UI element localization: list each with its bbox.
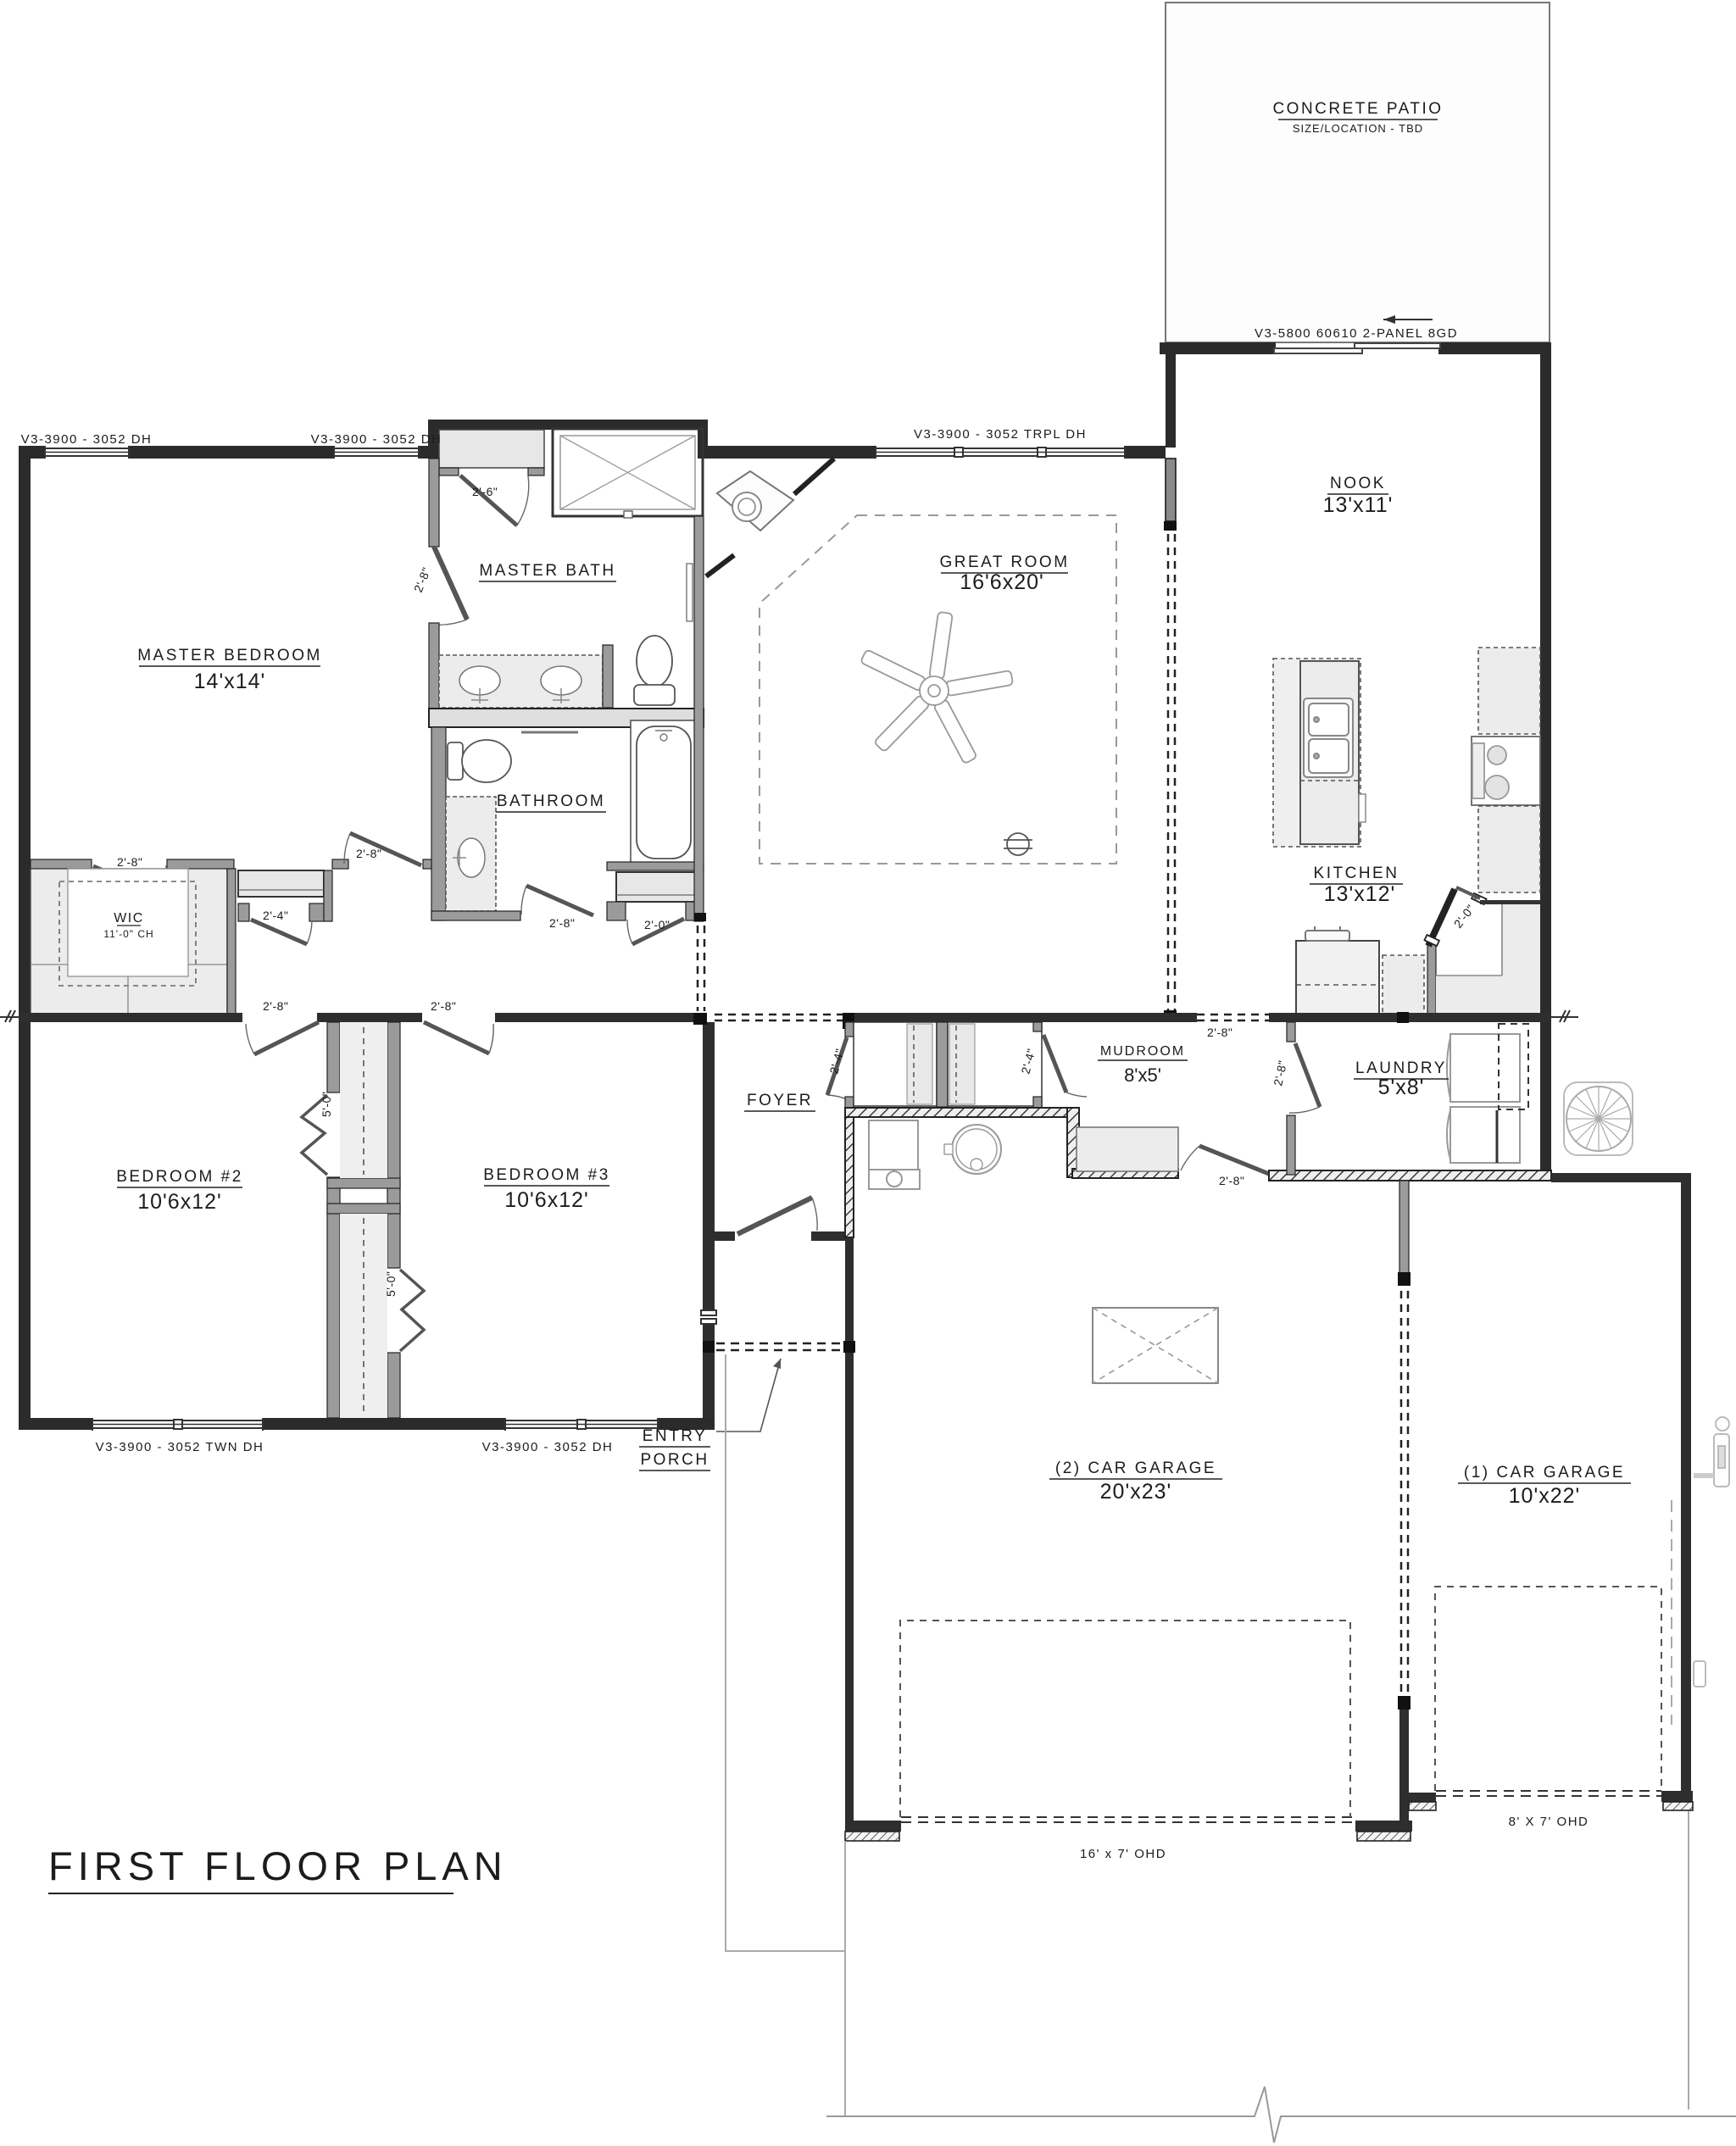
svg-text:8'x5': 8'x5' <box>1124 1065 1161 1086</box>
svg-text:CONCRETE PATIO: CONCRETE PATIO <box>1272 100 1443 118</box>
svg-text:5'-0": 5'-0" <box>384 1271 398 1297</box>
svg-text:2'-8": 2'-8" <box>356 847 381 860</box>
svg-text:14'x14': 14'x14' <box>194 670 266 693</box>
svg-text:5'-0": 5'-0" <box>320 1092 333 1117</box>
svg-text:8' X 7' OHD: 8' X 7' OHD <box>1509 1815 1589 1829</box>
svg-text:2'-6": 2'-6" <box>472 485 498 498</box>
svg-text:10'x22': 10'x22' <box>1509 1484 1581 1508</box>
svg-text:2'-8": 2'-8" <box>1207 1026 1232 1039</box>
svg-text:MUDROOM: MUDROOM <box>1100 1044 1185 1059</box>
svg-text:2'-8": 2'-8" <box>431 999 456 1013</box>
svg-text:16'6x20': 16'6x20' <box>960 570 1044 594</box>
svg-text:13'x11': 13'x11' <box>1323 493 1394 517</box>
svg-text:16' x 7' OHD: 16' x 7' OHD <box>1080 1847 1166 1861</box>
svg-text:2'-0": 2'-0" <box>644 918 670 931</box>
svg-text:BATHROOM: BATHROOM <box>497 792 605 810</box>
svg-text:10'6x12': 10'6x12' <box>137 1190 222 1214</box>
svg-text:20'x23': 20'x23' <box>1100 1480 1172 1504</box>
svg-text:FOYER: FOYER <box>747 1092 813 1109</box>
svg-text:LAUNDRY: LAUNDRY <box>1355 1059 1447 1077</box>
svg-text:MASTER BEDROOM: MASTER BEDROOM <box>137 647 322 664</box>
svg-text:FIRST FLOOR PLAN: FIRST FLOOR PLAN <box>48 1843 508 1888</box>
svg-text:(1) CAR GARAGE: (1) CAR GARAGE <box>1464 1464 1625 1482</box>
svg-text:11'-0" CH: 11'-0" CH <box>103 928 153 940</box>
svg-text:BEDROOM #2: BEDROOM #2 <box>116 1168 243 1186</box>
svg-text:V3-3900 - 3052 DH: V3-3900 - 3052 DH <box>21 432 153 447</box>
svg-text:ENTRY: ENTRY <box>643 1427 708 1445</box>
svg-text:(2) CAR GARAGE: (2) CAR GARAGE <box>1055 1459 1216 1477</box>
svg-text:NOOK: NOOK <box>1330 475 1386 492</box>
svg-text:SIZE/LOCATION - TBD: SIZE/LOCATION - TBD <box>1293 122 1423 135</box>
svg-text:MASTER BATH: MASTER BATH <box>479 562 615 580</box>
svg-text:10'6x12': 10'6x12' <box>504 1188 589 1212</box>
svg-text:2'-8": 2'-8" <box>1219 1174 1244 1187</box>
svg-text:13'x12': 13'x12' <box>1324 882 1396 906</box>
svg-text:BEDROOM #3: BEDROOM #3 <box>483 1166 610 1184</box>
svg-text:KITCHEN: KITCHEN <box>1314 865 1399 882</box>
svg-text:2'-8": 2'-8" <box>117 855 142 869</box>
svg-text:V3-3900 - 3052 DH: V3-3900 - 3052 DH <box>311 432 442 447</box>
svg-text:V3-5800 60610 2-PANEL 8GD: V3-5800 60610 2-PANEL 8GD <box>1255 326 1458 341</box>
svg-text:5'x8': 5'x8' <box>1378 1076 1425 1099</box>
svg-text:V3-3900 - 3052 TWN DH: V3-3900 - 3052 TWN DH <box>96 1440 264 1454</box>
svg-text:2'-8": 2'-8" <box>549 916 575 930</box>
svg-text:WIC: WIC <box>114 911 144 926</box>
svg-text:2'-4": 2'-4" <box>263 909 288 922</box>
svg-text:GREAT ROOM: GREAT ROOM <box>939 553 1069 571</box>
svg-text:V3-3900 - 3052 TRPL DH: V3-3900 - 3052 TRPL DH <box>914 427 1087 442</box>
svg-text:V3-3900 - 3052 DH: V3-3900 - 3052 DH <box>482 1440 614 1454</box>
svg-text:2'-8": 2'-8" <box>263 999 288 1013</box>
svg-text:PORCH: PORCH <box>640 1451 709 1469</box>
